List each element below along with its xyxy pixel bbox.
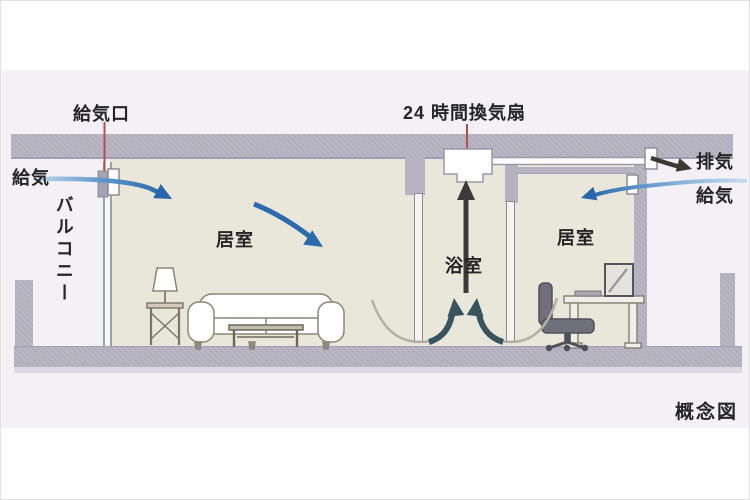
label-balcony: バルコニー [53,195,74,305]
fan-unit-icon [444,149,492,182]
airflow-overlay [1,1,750,500]
label-supply-right: 給気 [696,186,734,207]
label-exhaust: 排気 [696,152,734,173]
coffee-table-icon [229,325,303,347]
label-supply-port: 給気口 [73,104,130,125]
sofa-icon [188,294,344,349]
monitor-icon [605,264,633,296]
label-supply-left: 給気 [12,168,50,189]
page-background: 給気口 給気 バルコニー 居室 24 時間換気扇 浴室 居室 排気 給気 概念図 [0,0,750,500]
caption-diagram-type: 概念図 [675,402,738,424]
table-lamp-icon [153,268,177,303]
label-living-room-right: 居室 [557,228,595,249]
side-table-icon [147,303,183,345]
exhaust-duct [492,158,648,165]
label-fan: 24 時間換気扇 [403,103,526,124]
door-undercut-airflow-left [372,297,464,342]
label-living-room-left: 居室 [216,230,254,251]
room-airflow-arrow [254,204,328,254]
keyboard-icon [575,291,601,296]
label-bathroom: 浴室 [445,256,483,277]
supply-vent-right-icon [627,175,638,194]
